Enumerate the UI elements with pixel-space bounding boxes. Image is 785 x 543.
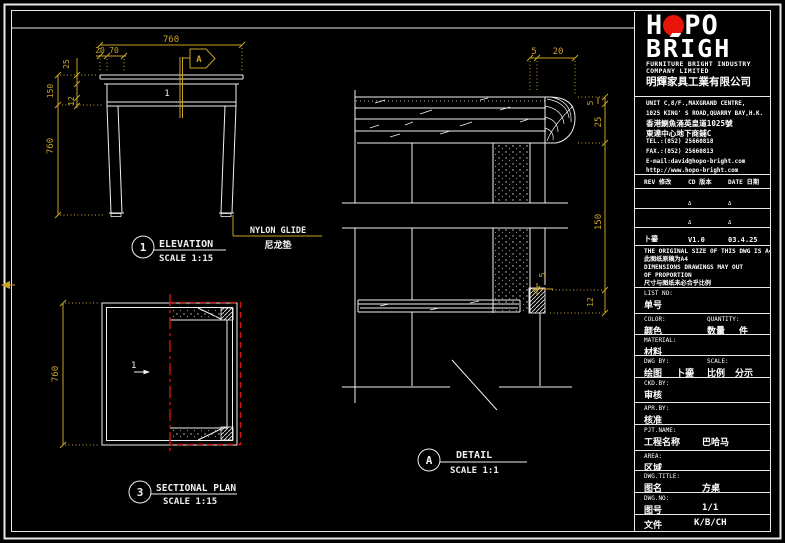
dwgno-value: 1/1 [702, 503, 718, 515]
dwgno-label-cn: 图号 [644, 503, 702, 515]
logo-brigh: BRIGH [646, 38, 768, 59]
quantity-unit: 件 [739, 324, 748, 335]
particle-board-bottom [172, 429, 221, 439]
field-file: 文件K/B/CH [635, 515, 770, 531]
detail-title: A DETAIL SCALE 1:1 [418, 449, 527, 476]
particle-board-top [172, 309, 221, 319]
detail-scale-text: SCALE 1:1 [450, 466, 499, 476]
callout-text-cn: 尼龙垫 [264, 239, 291, 251]
website-line: http://www.hopo-bright.com [646, 167, 770, 175]
file-value: K/B/CH [694, 518, 727, 531]
callout-text-en: NYLON GLIDE [250, 226, 306, 236]
plan-scale-text: SCALE 1:15 [163, 497, 217, 507]
company-name-en-2: COMPANY LIMITED [646, 68, 768, 75]
drawing-notes-section: THE ORIGINAL SIZE OF THIS DWG IS A4 此图纸原… [635, 246, 770, 288]
field-drawing-title: DWG.TITLE: 图名方桌 [635, 471, 770, 493]
field-project-name: PJT.NAME: 工程名称巴哈马 [635, 425, 770, 451]
left-margin-arrow [1, 281, 15, 289]
material-label-en: MATERIAL: [635, 335, 770, 344]
scale-label-cn: 比例 [707, 366, 735, 378]
elevation-dimensions [55, 42, 245, 218]
sectional-plan-title: 3 SECTIONAL PLAN SCALE 1:15 [129, 481, 237, 507]
plan-dim-760: 760 [51, 366, 61, 382]
corner-block-top [221, 308, 233, 320]
section-marker-flag [190, 49, 215, 68]
nylon-glide-callout: NYLON GLIDE 尼龙垫 [233, 215, 322, 251]
quantity-label-cn: 数量 [707, 324, 725, 335]
area-label-en: AREA: [635, 451, 770, 460]
plan-dimensions [60, 300, 100, 448]
scale-value: 分示 [735, 366, 753, 378]
dim-25: 25 [62, 59, 71, 69]
pjt-label-cn: 工程名称 [644, 435, 702, 448]
plan-part-label: 1 [131, 361, 150, 374]
note-line-4: OF PROPORTION [644, 272, 770, 280]
company-name-cn: 明輝家具工業有限公司 [646, 76, 768, 89]
section-boundary [170, 303, 241, 445]
plan-part-number: 1 [131, 361, 136, 371]
field-dwgby-scale: DWG BY: SCALE: 绘图卜鎏 比例分示 [635, 356, 770, 378]
elevation-balloon-number: 1 [140, 241, 147, 254]
list-no-label-cn: 单号 [644, 298, 702, 311]
dwgby-value: 卜鎏 [676, 366, 694, 378]
dim-12: 12 [67, 96, 76, 106]
address-line-1: UNIT C,8/F.,MAXGRAND CENTRE, [646, 100, 770, 110]
note-line-3: DIMENSIONS DRAWINGS MAY OUT [644, 264, 770, 272]
rev3-rev: 卜鎏 [644, 234, 688, 244]
quantity-label-en: QUANTITY: [707, 314, 770, 323]
file-label-cn: 文件 [644, 521, 662, 531]
field-material: MATERIAL: 材料 [635, 335, 770, 356]
scale-label-en: SCALE: [707, 356, 770, 365]
note-line-2: 此图纸原稿为A4 [644, 256, 770, 264]
color-label-en: COLOR: [644, 314, 707, 323]
revision-row-1: Δ Δ [635, 189, 770, 209]
left-foot-glide [111, 214, 121, 217]
ckdby-label-en: CKD.BY: [635, 378, 770, 387]
rev3-date: 03.4.25 [728, 236, 770, 244]
elevation-part-label: 1 [164, 89, 169, 99]
corner-block-bottom [221, 427, 233, 440]
dwgtitle-value: 方桌 [702, 481, 720, 493]
leader-arrowhead [144, 370, 151, 375]
phone-line: TEL.:(852) 25660818 [646, 138, 770, 148]
detail-dim-5-right: 5 [586, 100, 595, 105]
fax-line: FAX.:(852) 25660813 [646, 148, 770, 158]
detail-dim-20-top: 20 [553, 47, 564, 57]
field-list-no: LIST NO: 单号 [635, 288, 770, 314]
rev1-date: Δ [728, 201, 770, 207]
revision-row-3: 卜鎏 V1.0 03.4.25 [635, 228, 770, 246]
rev3-cd: V1.0 [688, 236, 728, 244]
aprby-label-en: APR.BY: [635, 403, 770, 412]
address-line-4: 東達中心地下商鋪C [646, 129, 770, 139]
address-line-3: 香港鰂魚涌英皇道1025號 [646, 119, 770, 129]
title-block: HPO BRIGH FURNITURE BRIGHT INDUSTRY COMP… [634, 12, 770, 531]
elevation-scale-text: SCALE 1:15 [159, 254, 213, 264]
detail-title-text: DETAIL [456, 450, 492, 461]
plan-balloon-number: 3 [137, 486, 144, 499]
detail-balloon-letter: A [426, 454, 433, 467]
revision-table-header: REV 修改 CD 版本 DATE 日期 [635, 175, 770, 189]
company-address-section: UNIT C,8/F.,MAXGRAND CENTRE, 1025 KING' … [635, 97, 770, 175]
detail-dim-12-right: 12 [586, 297, 595, 307]
sectional-plan-drawing: 760 1 3 SECTIONAL PLAN SCALE 1:15 [51, 294, 241, 507]
rev2-cd: Δ [688, 220, 728, 226]
dim-20: 20 [95, 46, 105, 55]
detail-dim-5-top: 5 [531, 47, 536, 57]
particle-board-upper [494, 144, 529, 202]
field-area: AREA: 区域 [635, 451, 770, 471]
ckdby-label-cn: 审核 [644, 388, 702, 401]
dim-150: 150 [46, 84, 55, 99]
detail-dim-25-right: 25 [594, 117, 604, 128]
rev-header-cd: CD 版本 [688, 177, 728, 186]
address-line-2: 1025 KING' S ROAD,QUARRY BAY,H.K. [646, 110, 770, 120]
bullnose-hatch [545, 97, 573, 141]
dwgno-label-en: DWG.NO: [635, 493, 770, 502]
note-line-5: 尺寸与图纸未必合乎比例 [644, 280, 770, 288]
list-no-label-en: LIST NO: [635, 288, 770, 297]
field-ckd-by: CKD.BY: 审核 [635, 378, 770, 403]
cad-drawing-sheet: 760 20 70 25 150 12 760 A 1 NYLON GLIDE … [0, 0, 785, 543]
particle-board-lower [494, 229, 529, 313]
detail-dim-150-right: 150 [594, 214, 604, 230]
pjt-label-en: PJT.NAME: [635, 425, 770, 434]
elevation-title-text: ELEVATION [159, 239, 213, 250]
rev-header-rev: REV 修改 [644, 177, 688, 186]
aprby-label-cn: 核准 [644, 413, 702, 425]
pjt-value: 巴哈马 [702, 435, 729, 448]
detail-dim-5-glide: 5 [538, 272, 547, 277]
email-line: E-mail:david@hopo-bright.com [646, 158, 770, 168]
area-label-cn: 区域 [644, 461, 702, 471]
logo-red-dot-icon [663, 15, 684, 36]
elevation-drawing: 760 20 70 25 150 12 760 A 1 NYLON GLIDE … [46, 35, 322, 264]
dwgtitle-label-cn: 图名 [644, 481, 702, 493]
field-color-quantity: COLOR: QUANTITY: 颜色 数量件 [635, 314, 770, 335]
dim-width-760: 760 [163, 35, 179, 45]
dwgby-label-en: DWG BY: [644, 356, 707, 365]
material-label-cn: 材料 [644, 345, 702, 356]
company-logo-section: HPO BRIGH FURNITURE BRIGHT INDUSTRY COMP… [635, 12, 770, 97]
elevation-title: 1 ELEVATION SCALE 1:15 [132, 236, 226, 264]
rev-header-date: DATE 日期 [728, 177, 770, 186]
plan-title-text: SECTIONAL PLAN [156, 483, 236, 494]
revision-row-2: Δ Δ [635, 209, 770, 228]
dwgtitle-label-en: DWG.TITLE: [635, 471, 770, 480]
color-label-cn: 颜色 [644, 324, 662, 335]
dim-70: 70 [109, 46, 119, 55]
note-line-1: THE ORIGINAL SIZE OF THIS DWG IS A4 [644, 248, 770, 256]
rev2-date: Δ [728, 220, 770, 226]
field-drawing-number: DWG.NO: 图号1/1 [635, 493, 770, 515]
section-marker-letter: A [196, 55, 202, 65]
dim-height-760: 760 [46, 138, 56, 154]
company-name-en-1: FURNITURE BRIGHT INDUSTRY [646, 61, 768, 68]
detail-drawing: 5 20 5 25 150 5 12 A DETAIL SCALE 1:1 [342, 47, 608, 476]
dwgby-label-cn: 绘图 [644, 366, 676, 378]
rev1-cd: Δ [688, 201, 728, 207]
right-foot-glide [221, 214, 231, 217]
field-apr-by: APR.BY: 核准 [635, 403, 770, 425]
